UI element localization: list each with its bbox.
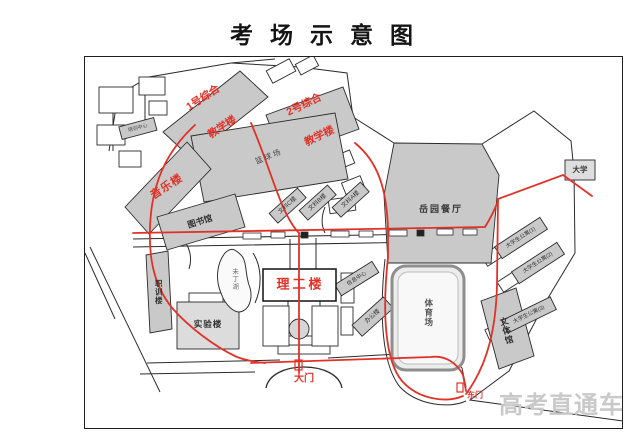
exam-map-page: 考场示意图 xyxy=(0,0,643,448)
label-stadium: 体育场 xyxy=(423,299,433,328)
campus-map-svg xyxy=(85,57,622,428)
label-main-gate: 大门 xyxy=(294,373,314,384)
label-yueyuan-dining: 岳园餐厅 xyxy=(419,204,463,214)
label-east-gate: 东门 xyxy=(467,392,483,401)
label-ligong-building: 理工楼 xyxy=(273,278,324,293)
page-title: 考场示意图 xyxy=(0,16,643,50)
campus-map: 1号综合 教学楼 2号综合 教学楼 音乐楼 理工楼 大门 东门 篮球场 图书馆 … xyxy=(84,56,623,429)
label-daxue: 大学 xyxy=(573,166,588,174)
label-zhixun-building: 职训楼 xyxy=(154,279,162,305)
label-lake: 未丁湖 xyxy=(230,268,237,291)
watermark-gaokao: 高考直通车 xyxy=(499,385,624,420)
label-shiyan-building: 实验楼 xyxy=(194,320,223,330)
